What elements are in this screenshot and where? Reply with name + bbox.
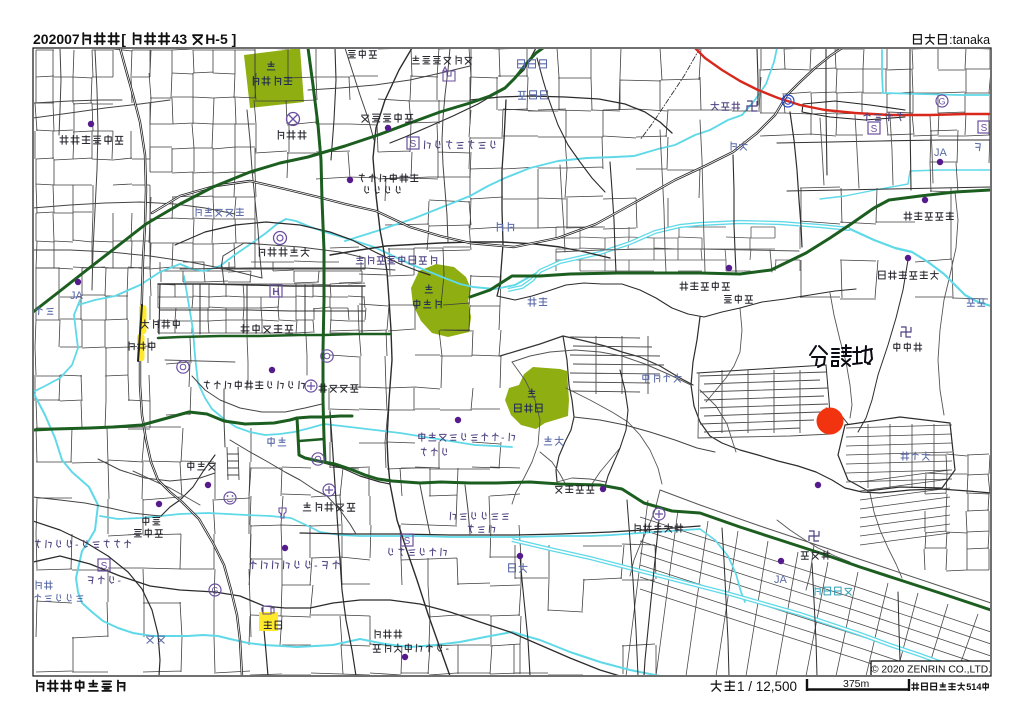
- svg-text:G: G: [211, 586, 218, 596]
- svg-text:S: S: [404, 536, 411, 547]
- svg-text:-: -: [75, 539, 79, 551]
- svg-text:375m: 375m: [843, 678, 870, 690]
- svg-text::tanaka: :tanaka: [949, 33, 990, 47]
- svg-text:-: -: [446, 643, 450, 655]
- svg-text:H-5 ]: H-5 ]: [205, 31, 236, 47]
- svg-text:G: G: [938, 97, 945, 107]
- svg-text:514: 514: [966, 682, 982, 692]
- svg-text:S: S: [101, 561, 108, 572]
- svg-text:1 / 12,500: 1 / 12,500: [737, 679, 797, 694]
- svg-text:S: S: [981, 123, 988, 134]
- svg-text:S: S: [410, 139, 417, 150]
- svg-text:-: -: [314, 560, 318, 572]
- svg-text:H: H: [272, 287, 279, 298]
- svg-text:S: S: [871, 124, 878, 135]
- svg-text:-: -: [118, 575, 122, 587]
- svg-text:JA: JA: [774, 574, 788, 586]
- svg-text:43: 43: [172, 31, 188, 47]
- svg-text:JA: JA: [934, 147, 948, 159]
- svg-text:© 2020 ZENRIN CO.,LTD.: © 2020 ZENRIN CO.,LTD.: [871, 665, 991, 676]
- svg-text:JA: JA: [70, 290, 84, 302]
- svg-text:202007: 202007: [33, 31, 80, 47]
- svg-text:[: [: [121, 31, 126, 47]
- svg-text:-: -: [501, 432, 505, 444]
